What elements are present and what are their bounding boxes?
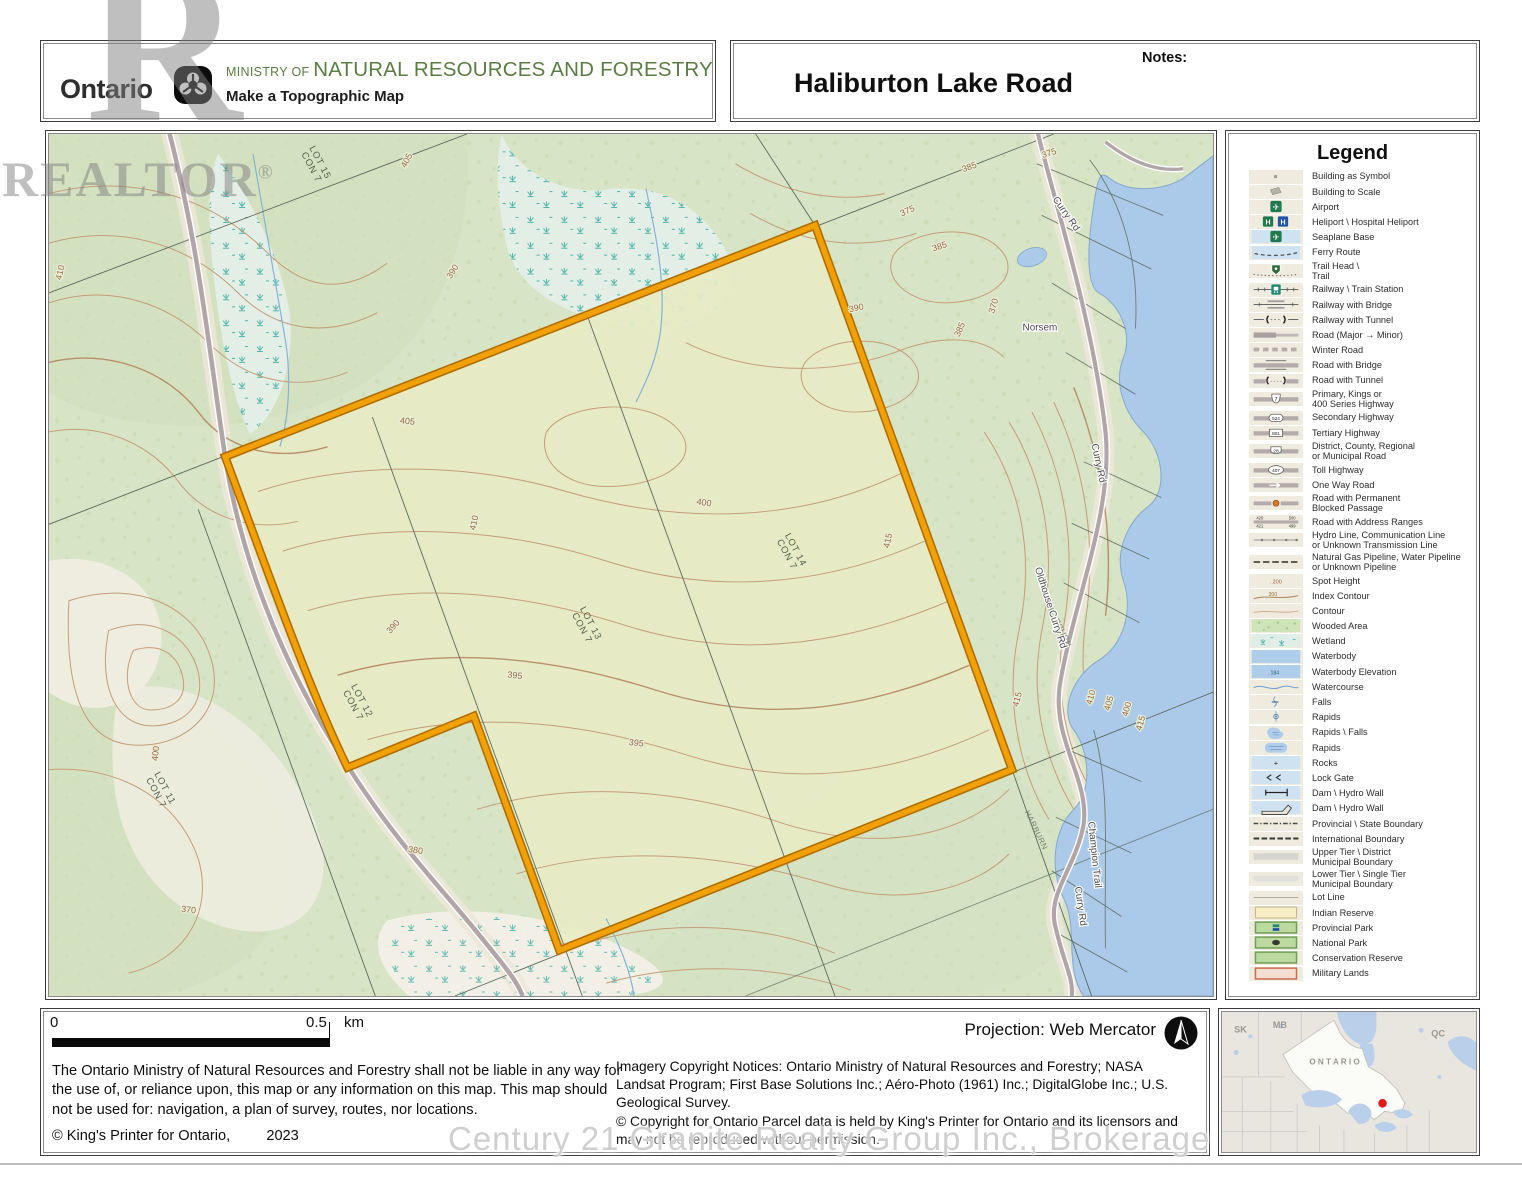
topographic-map: 4054103903753853753853903703854054104004… xyxy=(48,133,1214,997)
legend-item: Railway with Tunnel xyxy=(1249,312,1476,327)
inset-locator-map: SK MB O N T A R I O QC xyxy=(1221,1011,1477,1153)
falls-symbol xyxy=(1249,695,1303,709)
svg-text:H: H xyxy=(1280,219,1285,226)
legend-item-label: Wooded Area xyxy=(1312,621,1368,631)
waterbody-elev-symbol: . 184 xyxy=(1249,665,1303,679)
indian-reserve-symbol xyxy=(1249,906,1303,920)
winter-road-symbol xyxy=(1249,343,1303,357)
legend-item-label: Heliport \ Hospital Heliport xyxy=(1312,217,1419,227)
legend-item-label: Tertiary Highway xyxy=(1312,428,1380,438)
svg-text:524: 524 xyxy=(1272,416,1280,421)
road-address-symbol: 420500421499 xyxy=(1249,515,1303,529)
legend-item-label: Natural Gas Pipeline, Water Pipeline or … xyxy=(1312,552,1461,573)
hwy-secondary-symbol: 524 xyxy=(1249,411,1303,425)
legend-item: Railway \ Train Station xyxy=(1249,282,1476,297)
seaplane-symbol: ✈ xyxy=(1249,230,1303,244)
copyright-year: 2023 xyxy=(266,1128,298,1144)
header-branding-panel: Ontario MINISTRY OF NATURAL RESOURCES AN… xyxy=(40,40,716,122)
intl-boundary-symbol xyxy=(1249,832,1303,846)
legend-item: 407Toll Highway xyxy=(1249,462,1476,477)
legend-item: 420500421499Road with Address Ranges xyxy=(1249,514,1476,529)
map-title: Haliburton Lake Road xyxy=(794,68,1073,99)
svg-text:28: 28 xyxy=(1273,449,1279,455)
watercourse-symbol xyxy=(1249,680,1303,694)
projection-label: Projection: Web Mercator xyxy=(604,1020,1156,1040)
legend-item: National Park xyxy=(1249,936,1476,951)
legend-item-label: Rapids xyxy=(1312,743,1341,753)
scale-zero: 0 xyxy=(50,1014,58,1031)
contour-label: 395 xyxy=(628,737,644,748)
lower-tier-symbol xyxy=(1249,872,1303,886)
contour-label: 395 xyxy=(507,669,523,680)
legend-item: ✈Airport xyxy=(1249,199,1476,214)
legend-item-label: Airport xyxy=(1312,202,1339,212)
legend-item-label: Road with Address Ranges xyxy=(1312,517,1423,527)
heliport-symbol: HH xyxy=(1249,215,1303,229)
hydro-line-symbol xyxy=(1249,533,1303,547)
legend-item: Falls xyxy=(1249,695,1476,710)
legend-item: Hydro Line, Communication Line or Unknow… xyxy=(1249,530,1476,552)
svg-text:420: 420 xyxy=(1256,515,1264,520)
upper-tier-symbol xyxy=(1249,850,1303,864)
legend-item: Rapids \ Falls xyxy=(1249,725,1476,740)
legend-item-label: Rapids \ Falls xyxy=(1312,727,1368,737)
legend-item-label: One Way Road xyxy=(1312,480,1374,490)
legend-item-label: Upper Tier \ District Municipal Boundary xyxy=(1312,847,1393,868)
svg-text:H: H xyxy=(1266,219,1271,226)
imagery-copyright: Imagery Copyright Notices: Ontario Minis… xyxy=(616,1058,1184,1112)
legend-item-label: Index Contour xyxy=(1312,591,1370,601)
prov-park-symbol xyxy=(1249,921,1303,935)
header-title-panel: Haliburton Lake Road Notes: xyxy=(730,40,1480,122)
legend-item-label: Road with Bridge xyxy=(1312,360,1382,370)
inset-label-qc: QC xyxy=(1431,1028,1445,1038)
legend-item-label: Railway with Bridge xyxy=(1312,300,1392,310)
bottom-divider xyxy=(0,1163,1522,1165)
legend-item-label: Lot Line xyxy=(1312,892,1345,902)
legend-item-label: Primary, Kings or 400 Series Highway xyxy=(1312,389,1394,410)
svg-text:. 200: . 200 xyxy=(1269,579,1281,585)
legend-item-label: Road with Permanent Blocked Passage xyxy=(1312,493,1400,514)
wooded-symbol xyxy=(1249,619,1303,633)
svg-text:421: 421 xyxy=(1256,524,1264,529)
legend-item: ✈Seaplane Base xyxy=(1249,230,1476,245)
road-tunnel-symbol xyxy=(1249,374,1303,388)
legend-item-label: Dam \ Hydro Wall xyxy=(1312,803,1384,813)
legend-item: Building to Scale xyxy=(1249,184,1476,199)
notes-label: Notes: xyxy=(1142,50,1187,66)
dam1-symbol xyxy=(1249,786,1303,800)
legend-item-label: Building to Scale xyxy=(1312,187,1380,197)
legend-item: Ferry Route xyxy=(1249,245,1476,260)
svg-text:499: 499 xyxy=(1289,524,1297,529)
hwy-tertiary-symbol: 801 xyxy=(1249,426,1303,440)
inset-locator-panel: SK MB O N T A R I O QC xyxy=(1218,1008,1480,1156)
rapids-dot-symbol xyxy=(1249,710,1303,724)
one-way-symbol xyxy=(1249,478,1303,492)
trail-symbol xyxy=(1249,264,1303,278)
legend-title: Legend xyxy=(1229,142,1476,165)
legend-item: 28District, County, Regional or Municipa… xyxy=(1249,440,1476,462)
legend-item: Road (Major → Minor) xyxy=(1249,327,1476,342)
legend-item: Rapids xyxy=(1249,710,1476,725)
legend-panel: Legend Building as SymbolBuilding to Sca… xyxy=(1225,130,1480,1000)
legend-item: Road with Bridge xyxy=(1249,358,1476,373)
legend-item-label: Provincial \ State Boundary xyxy=(1312,819,1423,829)
legend-item-label: Road (Major → Minor) xyxy=(1312,330,1403,340)
road-blocked-symbol xyxy=(1249,496,1303,510)
legend-item-label: Provincial Park xyxy=(1312,923,1373,933)
legend-item-label: Seaplane Base xyxy=(1312,232,1374,242)
legend-item: . 184Waterbody Elevation xyxy=(1249,664,1476,679)
legend-item: 524Secondary Highway xyxy=(1249,410,1476,425)
legend-item-label: Winter Road xyxy=(1312,345,1363,355)
legend-item-label: Falls xyxy=(1312,697,1331,707)
legend-item-label: Road with Tunnel xyxy=(1312,375,1383,385)
hwy-primary-symbol: 7 xyxy=(1249,392,1303,406)
rocks-symbol: + xyxy=(1249,756,1303,770)
legend-item: Road with Permanent Blocked Passage xyxy=(1249,493,1476,515)
legend-item: Provincial \ State Boundary xyxy=(1249,816,1476,831)
legend-item-label: Rapids xyxy=(1312,712,1341,722)
legend-item: One Way Road xyxy=(1249,477,1476,492)
legend-item-label: National Park xyxy=(1312,938,1367,948)
road-major-minor-symbol xyxy=(1249,328,1303,342)
svg-text:200: 200 xyxy=(1269,592,1278,598)
airport-symbol: ✈ xyxy=(1249,200,1303,214)
legend-item-label: Military Lands xyxy=(1312,968,1369,978)
prov-boundary-symbol xyxy=(1249,817,1303,831)
svg-text:✈: ✈ xyxy=(1272,202,1279,212)
rapids-area-symbol xyxy=(1249,741,1303,755)
legend-item: Contour xyxy=(1249,603,1476,618)
map-canvas: 4054103903753853753853903703854054104004… xyxy=(49,134,1213,996)
legend-item-label: Rocks xyxy=(1312,758,1338,768)
legend-item-label: Toll Highway xyxy=(1312,465,1364,475)
scale-bar xyxy=(52,1038,330,1047)
app-title: Make a Topographic Map xyxy=(226,88,404,105)
ministry-prefix: MINISTRY OF xyxy=(226,65,313,79)
legend-item: Indian Reserve xyxy=(1249,905,1476,920)
legend-item: 7Primary, Kings or 400 Series Highway xyxy=(1249,388,1476,410)
building-symbol-symbol xyxy=(1249,170,1303,184)
railway-station-symbol xyxy=(1249,283,1303,297)
legend-item-label: Conservation Reserve xyxy=(1312,953,1403,963)
wetland-symbol xyxy=(1249,634,1303,648)
legend-item-label: Watercourse xyxy=(1312,682,1364,692)
inset-label-sk: SK xyxy=(1234,1024,1247,1034)
lot-line-symbol xyxy=(1249,891,1303,905)
legend-item: Wooded Area xyxy=(1249,619,1476,634)
legend-item: 801Tertiary Highway xyxy=(1249,425,1476,440)
legend-item: Building as Symbol xyxy=(1249,169,1476,184)
legend-item-label: Railway with Tunnel xyxy=(1312,315,1393,325)
legend-item-label: Wetland xyxy=(1312,636,1346,646)
legend-item: HHHeliport \ Hospital Heliport xyxy=(1249,215,1476,230)
ferry-symbol xyxy=(1249,246,1303,260)
legend-items: Building as SymbolBuilding to Scale✈Airp… xyxy=(1249,169,1476,981)
legend-item: Winter Road xyxy=(1249,343,1476,358)
legend-item-label: Building as Symbol xyxy=(1312,171,1390,181)
legend-item-label: Dam \ Hydro Wall xyxy=(1312,788,1384,798)
legend-item: Trail Head \ Trail xyxy=(1249,260,1476,282)
contour-label: 370 xyxy=(181,904,197,915)
railway-tunnel-symbol xyxy=(1249,313,1303,327)
legend-item: Military Lands xyxy=(1249,966,1476,981)
legend-item-label: District, County, Regional or Municipal … xyxy=(1312,441,1415,462)
legend-item: Lot Line xyxy=(1249,890,1476,905)
military-symbol xyxy=(1249,967,1303,981)
inset-label-ontario: O N T A R I O xyxy=(1309,1058,1359,1067)
natl-park-symbol xyxy=(1249,936,1303,950)
legend-item: Conservation Reserve xyxy=(1249,951,1476,966)
contour-label: 400 xyxy=(696,496,712,508)
scale-half: 0.5 xyxy=(306,1014,327,1031)
road-bridge-symbol xyxy=(1249,358,1303,372)
legend-item-label: Waterbody xyxy=(1312,651,1356,661)
legend-item: Dam \ Hydro Wall xyxy=(1249,786,1476,801)
lock-gate-symbol xyxy=(1249,771,1303,785)
legend-item: 200Index Contour xyxy=(1249,588,1476,603)
legend-item: International Boundary xyxy=(1249,831,1476,846)
road-label: Norsem xyxy=(1023,323,1058,334)
legend-item-label: Trail Head \ Trail xyxy=(1312,261,1359,282)
legend-item-label: Spot Height xyxy=(1312,576,1360,586)
railway-bridge-symbol xyxy=(1249,298,1303,312)
legend-item-label: Hydro Line, Communication Line or Unknow… xyxy=(1312,530,1445,551)
legend-item-label: Contour xyxy=(1312,606,1345,616)
trillium-logo-icon xyxy=(174,66,212,109)
contour-label: 380 xyxy=(407,844,423,856)
legend-item: Waterbody xyxy=(1249,649,1476,664)
legend-item: Wetland xyxy=(1249,634,1476,649)
legend-item-label: Railway \ Train Station xyxy=(1312,284,1403,294)
legend-item: Railway with Bridge xyxy=(1249,297,1476,312)
index-contour-symbol: 200 xyxy=(1249,589,1303,603)
topographic-map-page: { "header": { "brand": "Ontario", "minis… xyxy=(0,0,1522,1200)
legend-item: Upper Tier \ District Municipal Boundary xyxy=(1249,846,1476,868)
pipeline-symbol xyxy=(1249,555,1303,569)
legend-item-label: Waterbody Elevation xyxy=(1312,667,1396,677)
svg-text:801: 801 xyxy=(1272,431,1280,436)
svg-text:500: 500 xyxy=(1289,515,1297,520)
kings-printer-text: © King's Printer for Ontario, xyxy=(52,1128,230,1144)
legend-item: Lower Tier \ Single Tier Municipal Bound… xyxy=(1249,868,1476,890)
svg-text:7: 7 xyxy=(1275,397,1278,403)
rapids-falls-symbol xyxy=(1249,726,1303,740)
hwy-toll-symbol: 407 xyxy=(1249,463,1303,477)
svg-text:407: 407 xyxy=(1272,468,1280,473)
legend-item: . 200Spot Height xyxy=(1249,573,1476,588)
road-district-symbol: 28 xyxy=(1249,444,1303,458)
legend-item: Provincial Park xyxy=(1249,920,1476,935)
scale-unit: km xyxy=(344,1014,364,1031)
dam2-symbol xyxy=(1249,801,1303,815)
ministry-name: NATURAL RESOURCES AND FORESTRY xyxy=(313,58,713,81)
legend-item-label: Ferry Route xyxy=(1312,247,1361,257)
map-panel: 4054103903753853753853903703854054104004… xyxy=(45,130,1217,1000)
parcel-copyright: © Copyright for Ontario Parcel data is h… xyxy=(616,1113,1206,1149)
location-dot xyxy=(1378,1099,1387,1108)
legend-item: Road with Tunnel xyxy=(1249,373,1476,388)
legend-item: Natural Gas Pipeline, Water Pipeline or … xyxy=(1249,551,1476,573)
building-scale-symbol xyxy=(1249,185,1303,199)
legend-item-label: Indian Reserve xyxy=(1312,908,1374,918)
footer-panel: 0 0.5 km The Ontario Ministry of Natural… xyxy=(40,1008,1210,1156)
legend-item: Lock Gate xyxy=(1249,771,1476,786)
scale-bar-tick xyxy=(329,1022,330,1038)
contour-label: 405 xyxy=(400,415,416,426)
legend-item-label: Secondary Highway xyxy=(1312,412,1394,422)
legend-item: Dam \ Hydro Wall xyxy=(1249,801,1476,816)
svg-text:✈: ✈ xyxy=(1272,232,1279,242)
disclaimer-text: The Ontario Ministry of Natural Resource… xyxy=(52,1062,630,1120)
waterbody-symbol xyxy=(1249,650,1303,664)
conservation-symbol xyxy=(1249,951,1303,965)
kings-printer-copyright: © King's Printer for Ontario, 2023 xyxy=(52,1128,299,1144)
legend-item-label: International Boundary xyxy=(1312,834,1404,844)
legend-item: Watercourse xyxy=(1249,679,1476,694)
legend-item: +Rocks xyxy=(1249,755,1476,770)
legend-item: Rapids xyxy=(1249,740,1476,755)
contour-label: 400 xyxy=(150,745,162,761)
legend-item-label: Lock Gate xyxy=(1312,773,1354,783)
north-arrow-icon xyxy=(1162,1014,1200,1057)
svg-text:+: + xyxy=(1274,759,1278,768)
ontario-wordmark: Ontario xyxy=(60,74,153,105)
legend-item-label: Lower Tier \ Single Tier Municipal Bound… xyxy=(1312,869,1406,890)
inset-label-mb: MB xyxy=(1273,1020,1288,1030)
spot-height-symbol: . 200 xyxy=(1249,574,1303,588)
ministry-title: MINISTRY OF NATURAL RESOURCES AND FOREST… xyxy=(226,58,713,82)
svg-text:. 184: . 184 xyxy=(1268,670,1280,676)
contour-symbol xyxy=(1249,604,1303,618)
